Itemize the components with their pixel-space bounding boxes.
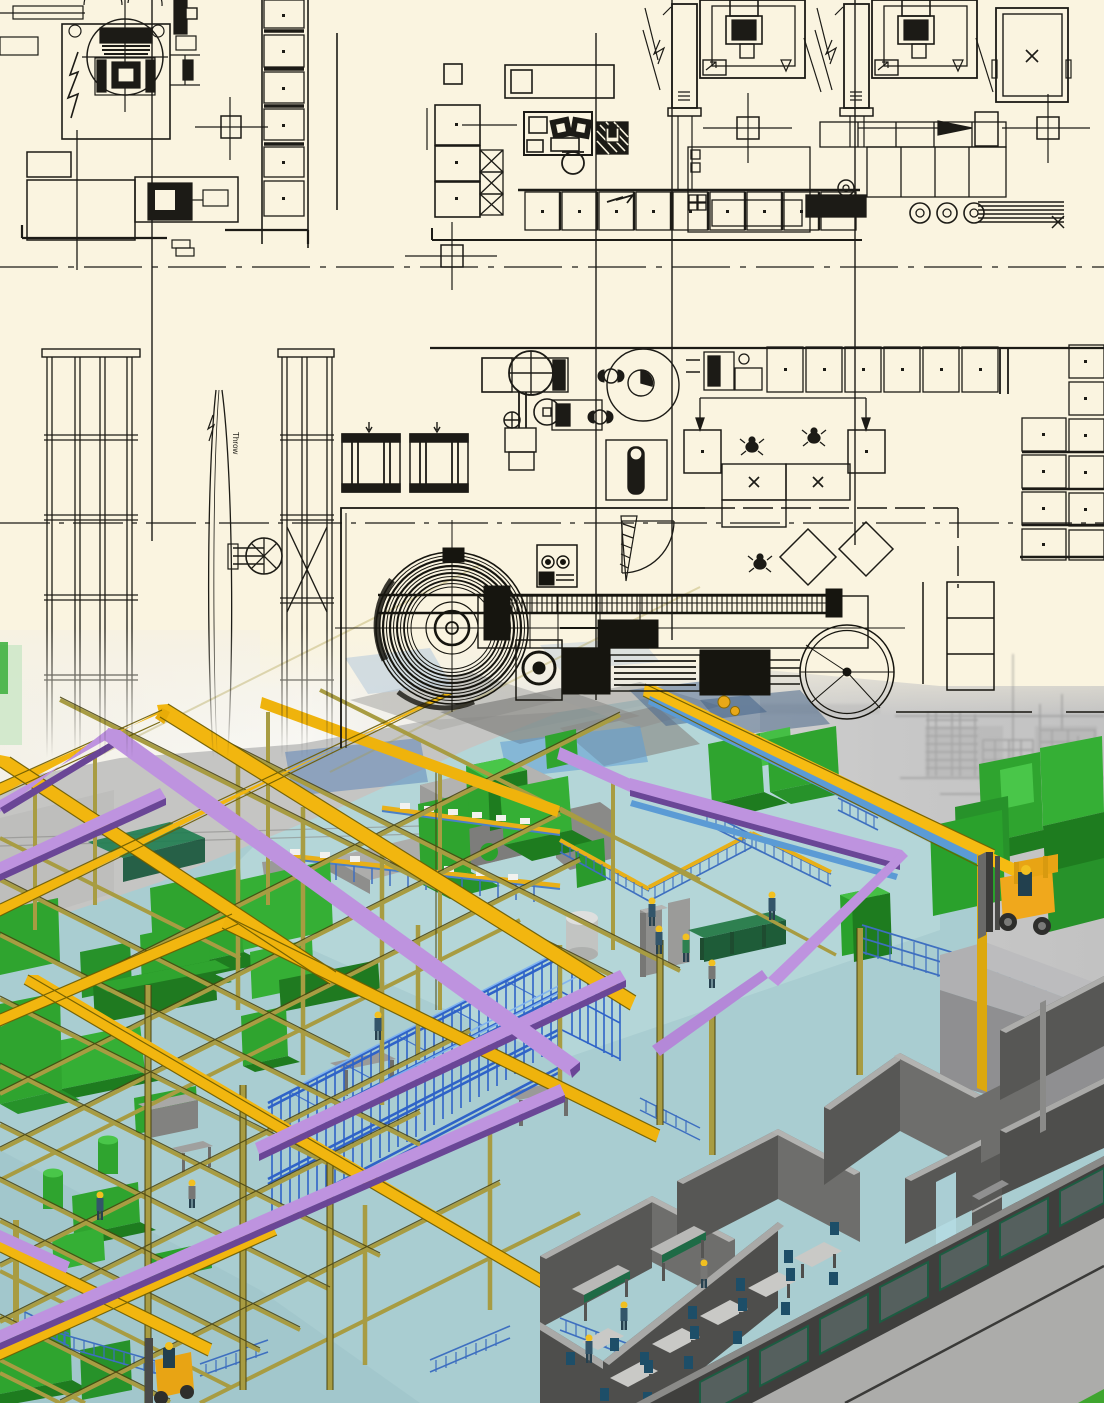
svg-text:Throw: Throw	[231, 432, 240, 454]
